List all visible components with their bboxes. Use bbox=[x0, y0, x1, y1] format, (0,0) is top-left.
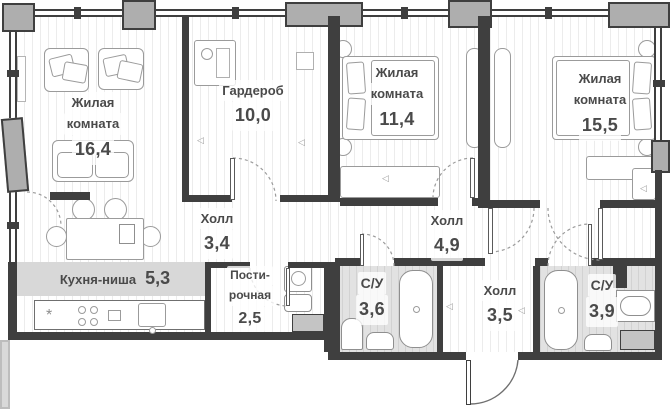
entry-door-leaf bbox=[466, 360, 471, 405]
door-marker-icon: ◁ bbox=[640, 184, 647, 193]
door-arc bbox=[233, 158, 276, 201]
door-leaf bbox=[488, 208, 493, 254]
room-label-hall-entry: Холл 3,5 bbox=[460, 280, 540, 331]
faucet-icon bbox=[149, 327, 156, 334]
door-marker-icon: ◁ bbox=[298, 138, 305, 147]
washer-drum-icon bbox=[291, 271, 306, 286]
door-leaf bbox=[588, 224, 592, 266]
balcony-door-arc bbox=[27, 192, 61, 226]
entry-door-arc bbox=[470, 360, 518, 404]
burner-icon bbox=[90, 318, 98, 326]
door-marker-icon: ◁ bbox=[382, 174, 389, 183]
burner-icon bbox=[78, 318, 86, 326]
door-leaf bbox=[470, 158, 475, 198]
floor-plan: * ◁ ◁ ◁ ◁ ◁ ◁ Ж bbox=[0, 0, 670, 409]
door-arcs-layer bbox=[0, 0, 670, 409]
cooktop-icon: * bbox=[46, 308, 52, 324]
room-label-wardrobe: Гардероб 10,0 bbox=[203, 80, 303, 131]
room-label-kitchen: Кухня-ниша 5,3 bbox=[40, 268, 190, 289]
door-arc bbox=[548, 224, 590, 266]
room-label-bathroom-right: С/У 3,9 bbox=[572, 274, 632, 327]
room-label-bedroom-large: Жилая комната 15,5 bbox=[550, 68, 650, 141]
drain-icon bbox=[413, 306, 420, 313]
door-arc bbox=[433, 158, 473, 198]
room-label-laundry: Пости- рочная 2,5 bbox=[212, 266, 288, 332]
room-label-living: Жилая комната 16,4 bbox=[43, 92, 143, 165]
room-label-bathroom-left: С/У 3,6 bbox=[342, 272, 402, 325]
door-marker-icon: ◁ bbox=[197, 136, 204, 145]
oven-icon bbox=[108, 310, 121, 321]
kitchen-sink bbox=[138, 303, 166, 327]
burner-icon bbox=[90, 306, 98, 314]
door-arc bbox=[362, 234, 394, 266]
door-leaf bbox=[598, 208, 603, 260]
door-marker-icon: ◁ bbox=[446, 302, 453, 311]
drain-icon bbox=[558, 307, 565, 314]
burner-icon bbox=[78, 306, 86, 314]
door-arc bbox=[490, 208, 534, 252]
door-arc bbox=[548, 208, 600, 260]
room-label-hall-middle: Холл 4,9 bbox=[407, 210, 487, 261]
door-leaf bbox=[230, 158, 235, 200]
room-label-hall-top: Холл 3,4 bbox=[177, 208, 257, 259]
door-leaf bbox=[360, 234, 364, 266]
room-label-bedroom-small: Жилая комната 11,4 bbox=[347, 62, 447, 135]
